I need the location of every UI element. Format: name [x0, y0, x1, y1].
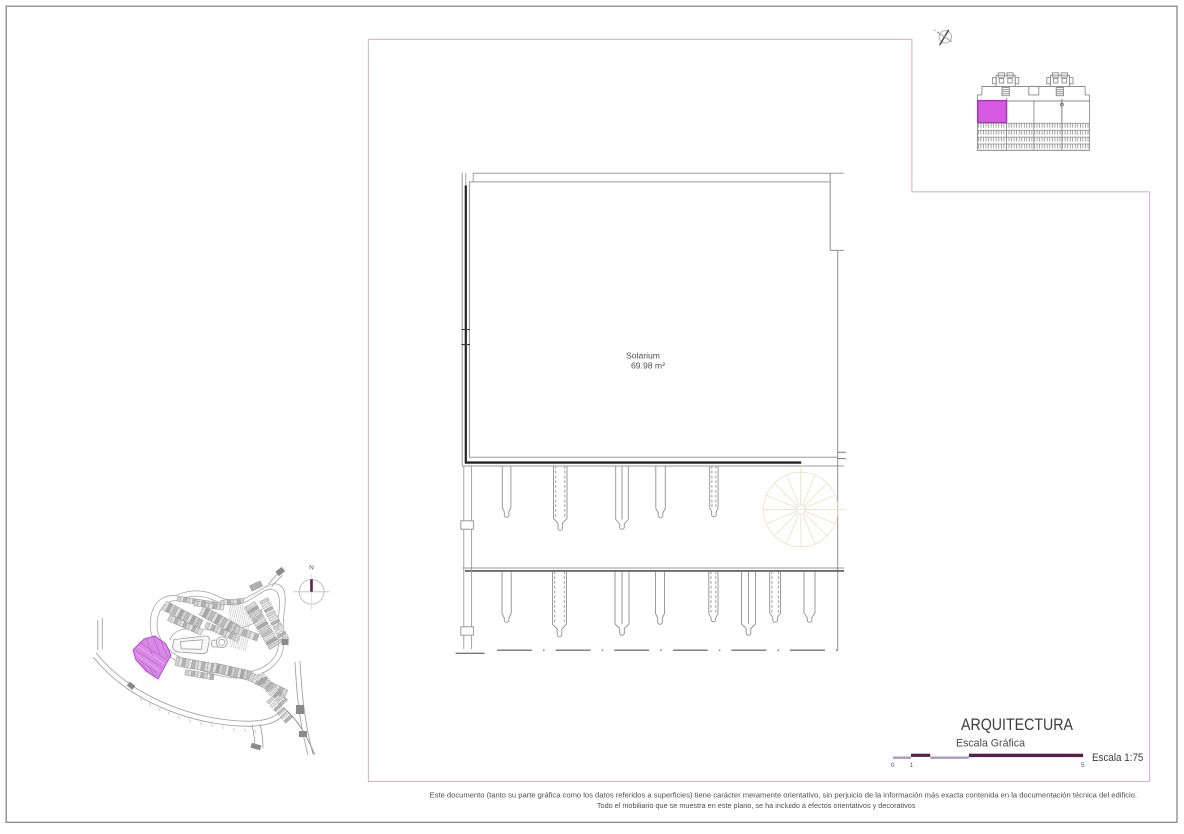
svg-text:1: 1: [910, 762, 914, 769]
svg-text:ARQUITECTURA: ARQUITECTURA: [961, 715, 1074, 734]
svg-text:Solarium: Solarium: [626, 350, 660, 360]
svg-text:Este documento (tanto su parte: Este documento (tanto su parte gráfica c…: [430, 792, 1137, 799]
svg-text:Escala Gráfica: Escala Gráfica: [956, 738, 1026, 750]
svg-text:5: 5: [1081, 762, 1085, 769]
svg-text:Todo el mobiliario que se mues: Todo el mobiliario que se muestra en est…: [597, 803, 916, 810]
svg-text:69.98 m²: 69.98 m²: [631, 360, 665, 370]
svg-text:0: 0: [891, 762, 895, 769]
svg-text:N: N: [309, 565, 314, 572]
svg-text:Escala 1:75: Escala 1:75: [1092, 752, 1143, 764]
